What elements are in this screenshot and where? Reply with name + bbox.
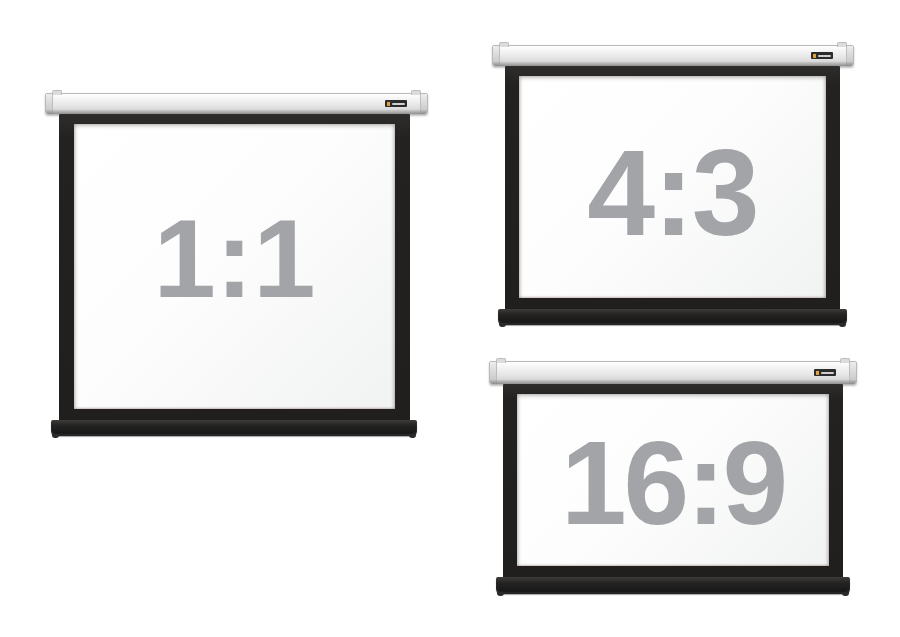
casing-end-cap (46, 94, 53, 114)
aspect-ratio-label: 4:3 (587, 132, 757, 254)
bar-end-cap (409, 434, 416, 438)
logo-wordmark (392, 102, 405, 104)
casing-end-cap (493, 46, 500, 66)
screen-surface: 16:9 (517, 394, 829, 566)
mounting-tab (837, 42, 847, 47)
mounting-tab (499, 42, 509, 47)
casing-end-cap (420, 94, 427, 114)
screen-casing (45, 93, 428, 115)
elite-screens-logo-icon (385, 100, 407, 107)
screen-weight-bar (498, 309, 847, 325)
screen-black-frame: 16:9 (503, 384, 843, 578)
casing-bottom-lip (46, 110, 427, 114)
elite-screens-logo-icon (811, 52, 833, 59)
casing-bottom-lip (490, 380, 856, 384)
bar-end-cap (52, 434, 59, 438)
casing-end-cap (490, 362, 497, 384)
projection-screen-4-3: 4:3 (0, 0, 900, 637)
bar-end-cap (497, 592, 504, 596)
screen-surface: 1:1 (74, 124, 395, 409)
mounting-tab (840, 358, 850, 363)
screen-black-frame: 1:1 (59, 114, 410, 421)
casing-end-cap (849, 362, 856, 384)
screen-black-frame: 4:3 (505, 66, 840, 310)
projection-screen-16-9: 16:9 (0, 0, 900, 637)
mounting-tab (496, 358, 506, 363)
screen-casing (489, 361, 857, 385)
logo-wordmark (818, 54, 831, 56)
bar-end-cap (839, 323, 846, 327)
product-image-canvas: 1:1 4:3 (0, 0, 900, 637)
mounting-tab (52, 90, 62, 95)
casing-bottom-lip (493, 62, 853, 66)
bar-end-cap (499, 323, 506, 327)
elite-screens-logo-icon (814, 369, 836, 376)
logo-accent-mark (816, 370, 819, 374)
logo-accent-mark (387, 101, 390, 105)
aspect-ratio-label: 1:1 (154, 203, 316, 315)
casing-end-cap (846, 46, 853, 66)
aspect-ratio-label: 16:9 (561, 424, 785, 542)
bar-end-cap (842, 592, 849, 596)
mounting-tab (411, 90, 421, 95)
screen-casing (492, 45, 854, 67)
screen-weight-bar (496, 577, 850, 594)
screen-weight-bar (51, 420, 417, 436)
screen-surface: 4:3 (519, 76, 826, 298)
projection-screen-1-1: 1:1 (0, 0, 900, 637)
logo-wordmark (821, 371, 834, 373)
logo-accent-mark (813, 53, 816, 57)
